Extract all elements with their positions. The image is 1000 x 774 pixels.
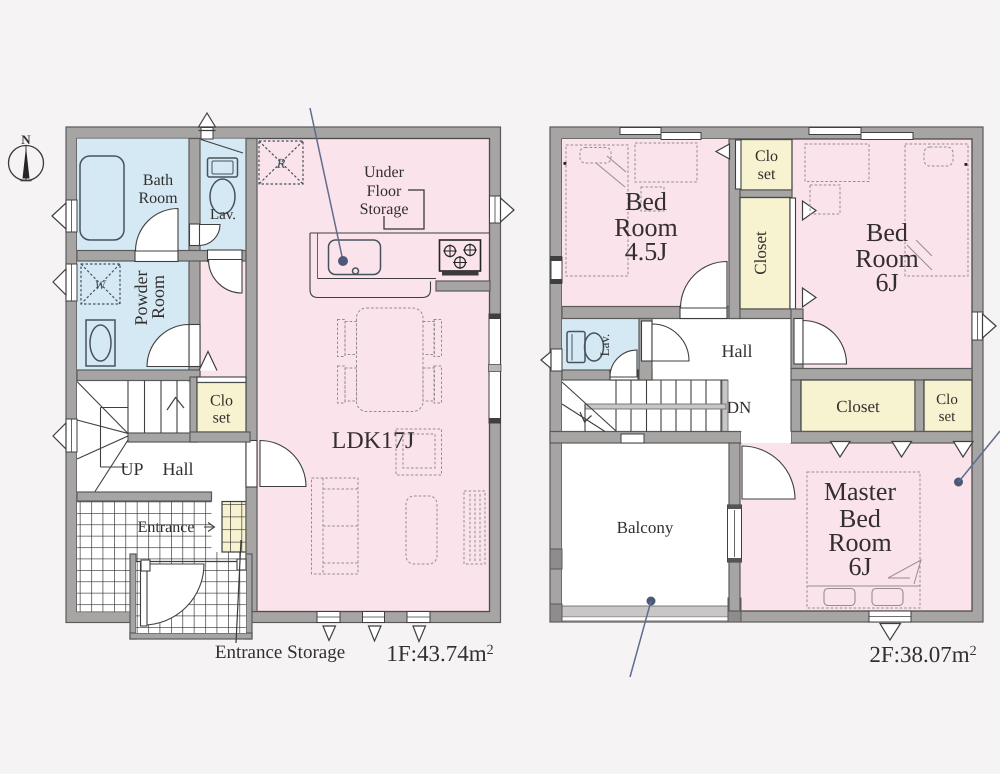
svg-text:Clo: Clo — [755, 148, 778, 165]
svg-text:Clo: Clo — [210, 393, 233, 410]
svg-text:Lav.: Lav. — [210, 207, 236, 223]
svg-text:Lav.: Lav. — [597, 334, 612, 357]
svg-text:Bath: Bath — [143, 172, 173, 189]
svg-text:Room: Room — [138, 190, 178, 207]
svg-text:Hall: Hall — [722, 341, 753, 361]
svg-text:R: R — [276, 157, 286, 172]
svg-text:N: N — [21, 132, 31, 147]
svg-text:6J: 6J — [875, 268, 898, 297]
svg-text:Master: Master — [824, 477, 897, 506]
svg-text:Bed: Bed — [866, 218, 908, 247]
svg-text:Entrance Storage: Entrance Storage — [215, 642, 345, 663]
svg-text:Room: Room — [148, 275, 168, 319]
svg-text:6J: 6J — [848, 552, 871, 581]
svg-text:Entrance: Entrance — [138, 519, 195, 536]
svg-text:UP: UP — [120, 459, 143, 479]
svg-text:Under: Under — [364, 164, 405, 181]
svg-text:W: W — [95, 277, 107, 292]
svg-text:DN: DN — [727, 398, 752, 417]
svg-text:set: set — [213, 410, 231, 427]
svg-text:set: set — [758, 166, 776, 183]
svg-text:Storage: Storage — [360, 201, 409, 218]
svg-text:Floor: Floor — [367, 183, 402, 200]
svg-text:Hall: Hall — [163, 459, 194, 479]
svg-text:Balcony: Balcony — [617, 518, 674, 537]
svg-text:Bed: Bed — [625, 187, 667, 216]
svg-text:4.5J: 4.5J — [625, 237, 668, 266]
svg-text:Closet: Closet — [836, 397, 880, 416]
svg-text:LDK17J: LDK17J — [332, 428, 415, 454]
svg-text:Closet: Closet — [751, 231, 770, 275]
svg-text:set: set — [939, 409, 956, 425]
svg-text:1F:43.74m2: 1F:43.74m2 — [386, 641, 493, 666]
svg-text:2F:38.07m2: 2F:38.07m2 — [869, 642, 976, 667]
svg-text:Clo: Clo — [936, 392, 958, 408]
